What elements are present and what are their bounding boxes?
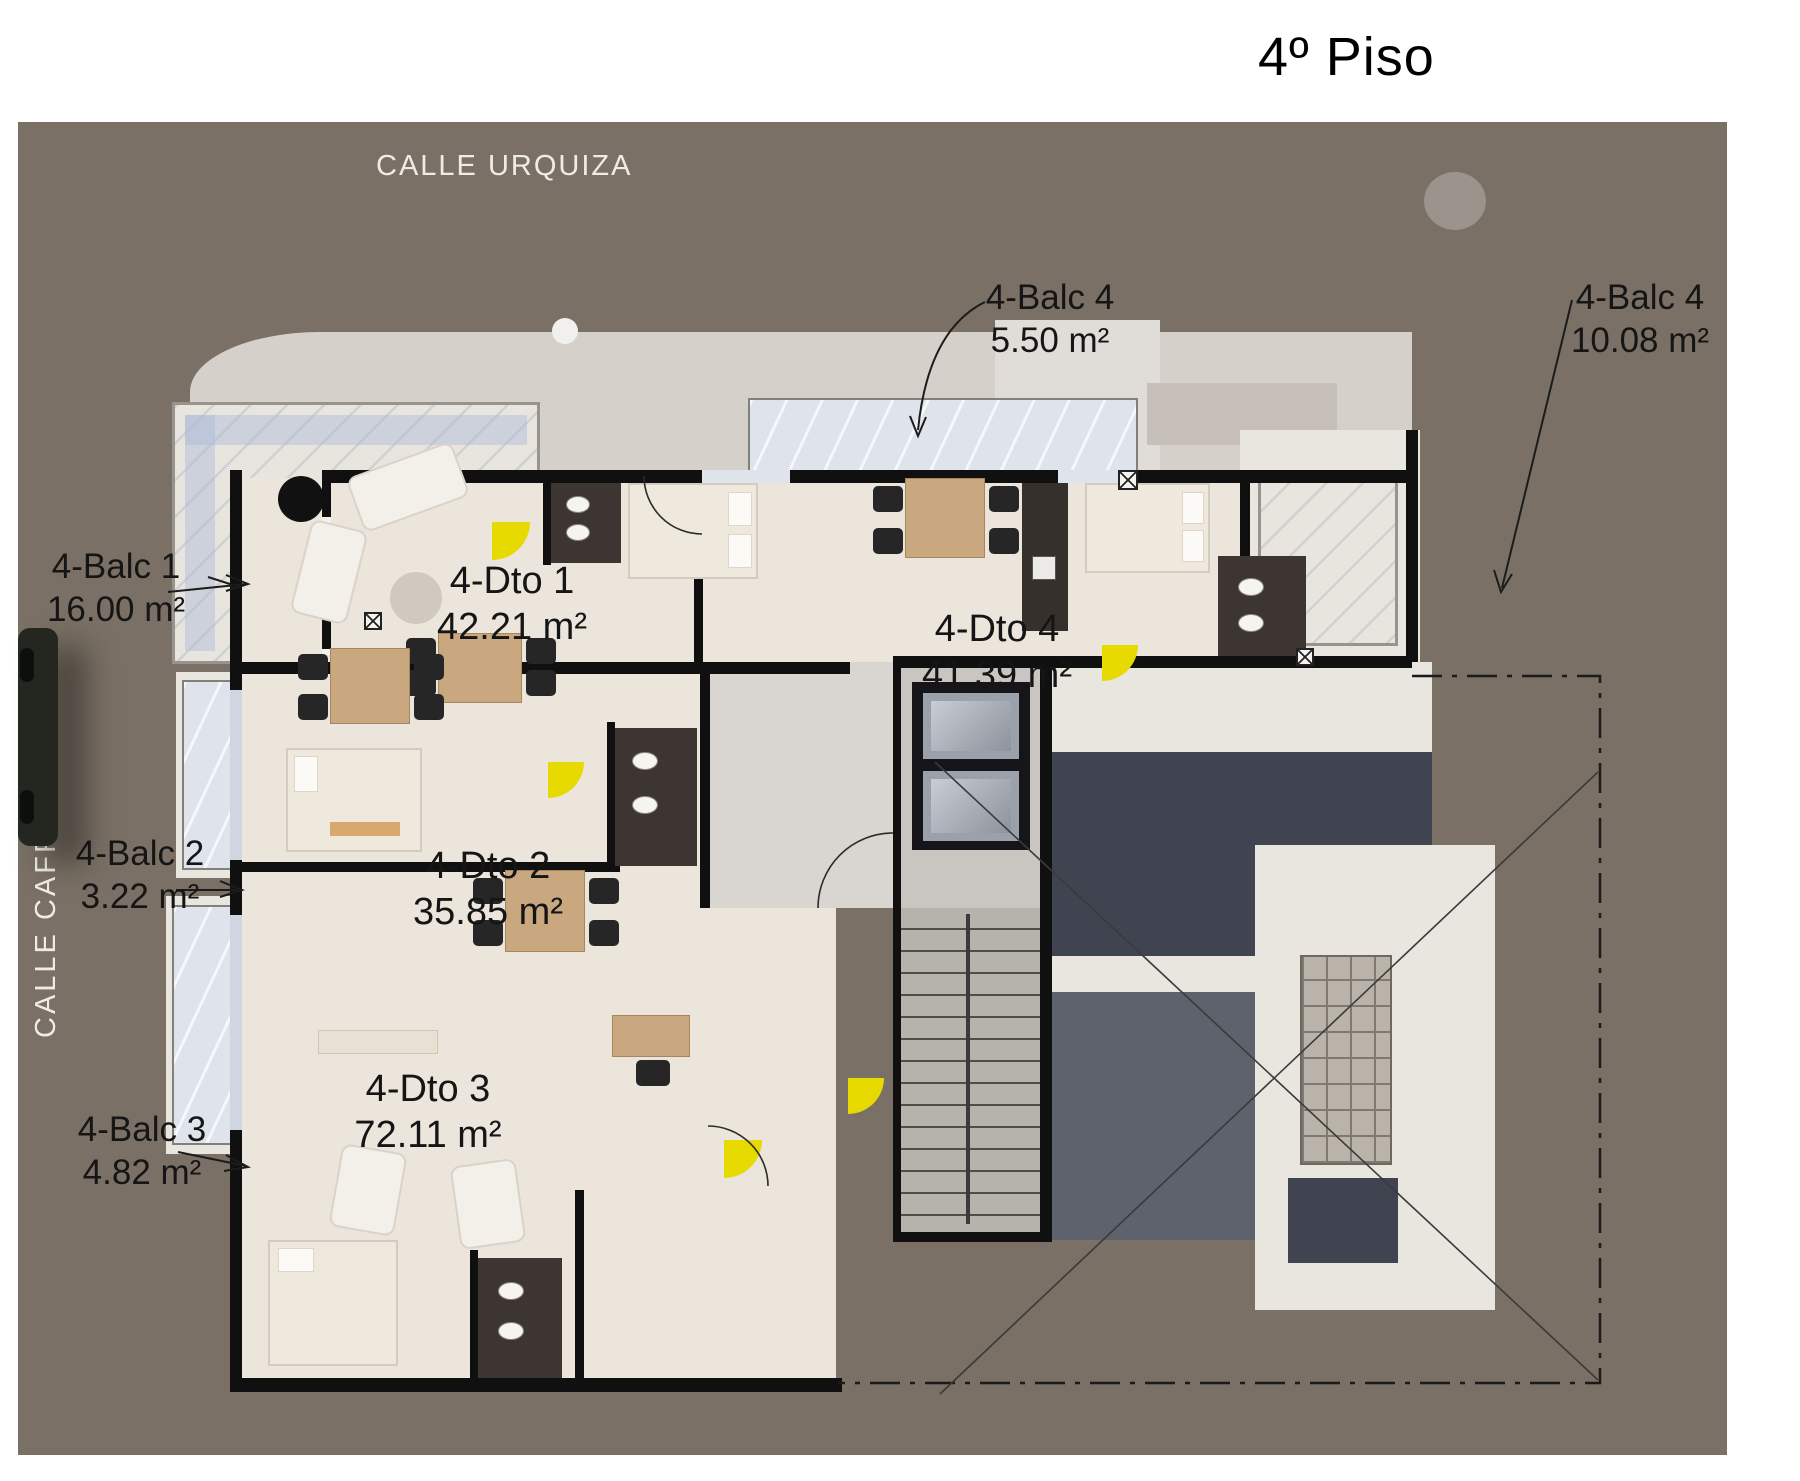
room-area: 42.21 m² xyxy=(437,604,587,650)
toilet xyxy=(498,1322,524,1340)
wall-bath3 xyxy=(470,1250,478,1380)
balcony-area: 10.08 m² xyxy=(1571,319,1709,362)
dining-table xyxy=(330,648,410,724)
wall-dto3-inner xyxy=(575,1190,584,1380)
fixture-mark-icon xyxy=(1296,648,1314,666)
terrace-band-left xyxy=(185,415,215,651)
toilet xyxy=(566,524,590,541)
bathroom-dto1 xyxy=(551,483,621,563)
kitchen-sink xyxy=(1032,556,1056,580)
room-name: 4-Dto 2 xyxy=(413,843,563,889)
elevator-car xyxy=(931,701,1011,751)
chair xyxy=(414,694,444,720)
floorplan-page: 4º Piso CALLE URQUIZA CALLE CAFFERATA xyxy=(0,0,1800,1481)
label-dto3: 4-Dto 3 72.11 m² xyxy=(354,1066,501,1158)
room-area: 41.39 m² xyxy=(922,652,1072,698)
wall-core-left xyxy=(893,662,901,1242)
elevator-car xyxy=(931,779,1011,833)
dining-table xyxy=(905,478,985,558)
toilet xyxy=(1238,578,1264,596)
page-title: 4º Piso xyxy=(1258,26,1435,88)
balcony-name: 4-Balc 3 xyxy=(78,1108,206,1151)
column-round xyxy=(278,476,324,522)
pillow xyxy=(294,756,318,792)
stair-rail xyxy=(966,914,970,1224)
armchair xyxy=(449,1158,526,1250)
terrace-band-top xyxy=(185,415,527,445)
chair xyxy=(526,670,556,696)
room-name: 4-Dto 1 xyxy=(437,558,587,604)
chair xyxy=(414,654,444,680)
wall-bottom xyxy=(230,1378,842,1392)
chair xyxy=(989,528,1019,554)
rug-round xyxy=(390,572,442,624)
room-area: 72.11 m² xyxy=(354,1112,501,1158)
sideboard xyxy=(318,1030,438,1054)
pillow xyxy=(1182,492,1204,524)
balcony-4a xyxy=(748,398,1138,478)
wall-bath2 xyxy=(607,722,615,872)
pillow xyxy=(728,534,752,568)
label-balc1: 4-Balc 1 16.00 m² xyxy=(47,545,185,631)
label-dto1: 4-Dto 1 42.21 m² xyxy=(437,558,587,650)
stairwell xyxy=(901,908,1040,1232)
toilet xyxy=(1238,614,1264,632)
wall-core-right xyxy=(1040,656,1052,1242)
label-dto4: 4-Dto 4 41.39 m² xyxy=(922,606,1072,698)
balcony-2-door xyxy=(230,690,242,860)
room-area: 35.85 m² xyxy=(413,889,563,935)
balcony-name: 4-Balc 2 xyxy=(76,832,204,875)
chair xyxy=(589,878,619,904)
car-wheel xyxy=(20,648,34,682)
balcony-3-door xyxy=(230,915,242,1130)
toilet xyxy=(498,1282,524,1300)
bench xyxy=(330,822,400,836)
roof-dot xyxy=(552,318,578,344)
chair xyxy=(636,1060,670,1086)
fixture-mark-icon xyxy=(1118,470,1138,490)
chair xyxy=(873,486,903,512)
pillow xyxy=(1182,530,1204,562)
bathroom-dto4 xyxy=(1218,556,1306,656)
label-balc2: 4-Balc 2 3.22 m² xyxy=(76,832,204,918)
chair xyxy=(873,528,903,554)
balcony-area: 16.00 m² xyxy=(47,588,185,631)
fixture-mark-icon xyxy=(364,612,382,630)
car-wheel xyxy=(20,790,34,824)
room-name: 4-Dto 3 xyxy=(354,1066,501,1112)
tree-blob xyxy=(1424,172,1486,230)
chair xyxy=(298,694,328,720)
lightwell-pit xyxy=(1288,1178,1398,1263)
wall-core-bottom xyxy=(893,1232,1052,1242)
balcony-area: 4.82 m² xyxy=(78,1151,206,1194)
corridor-floor xyxy=(700,662,896,908)
label-balc4a: 4-Balc 4 5.50 m² xyxy=(986,276,1114,362)
balcony-name: 4-Balc 1 xyxy=(47,545,185,588)
chair xyxy=(298,654,328,680)
skylight-grid xyxy=(1300,955,1392,1165)
elevator-2 xyxy=(920,768,1022,844)
street-name-top: CALLE URQUIZA xyxy=(376,150,632,183)
desk xyxy=(612,1015,690,1057)
pillow xyxy=(278,1248,314,1272)
chair xyxy=(989,486,1019,512)
wall-corridor-left xyxy=(700,662,710,908)
wall-bath1 xyxy=(543,483,551,565)
chair xyxy=(589,920,619,946)
balcony-name: 4-Balc 4 xyxy=(986,276,1114,319)
label-balc3: 4-Balc 3 4.82 m² xyxy=(78,1108,206,1194)
bathroom-dto2 xyxy=(615,728,697,866)
label-dto2: 4-Dto 2 35.85 m² xyxy=(413,843,563,935)
toilet xyxy=(632,752,658,770)
wall-right-outer xyxy=(1406,430,1418,662)
balcony-area: 3.22 m² xyxy=(76,875,204,918)
pillow xyxy=(728,492,752,526)
balcony-area: 5.50 m² xyxy=(986,319,1114,362)
roof-slab-right xyxy=(1040,662,1432,754)
elevator-1 xyxy=(920,690,1022,762)
room-name: 4-Dto 4 xyxy=(922,606,1072,652)
toilet xyxy=(632,796,658,814)
balcony-name: 4-Balc 4 xyxy=(1571,276,1709,319)
wall-top-window xyxy=(702,470,790,483)
toilet xyxy=(566,496,590,513)
bathroom-dto3 xyxy=(478,1258,562,1378)
label-balc4b: 4-Balc 4 10.08 m² xyxy=(1571,276,1709,362)
